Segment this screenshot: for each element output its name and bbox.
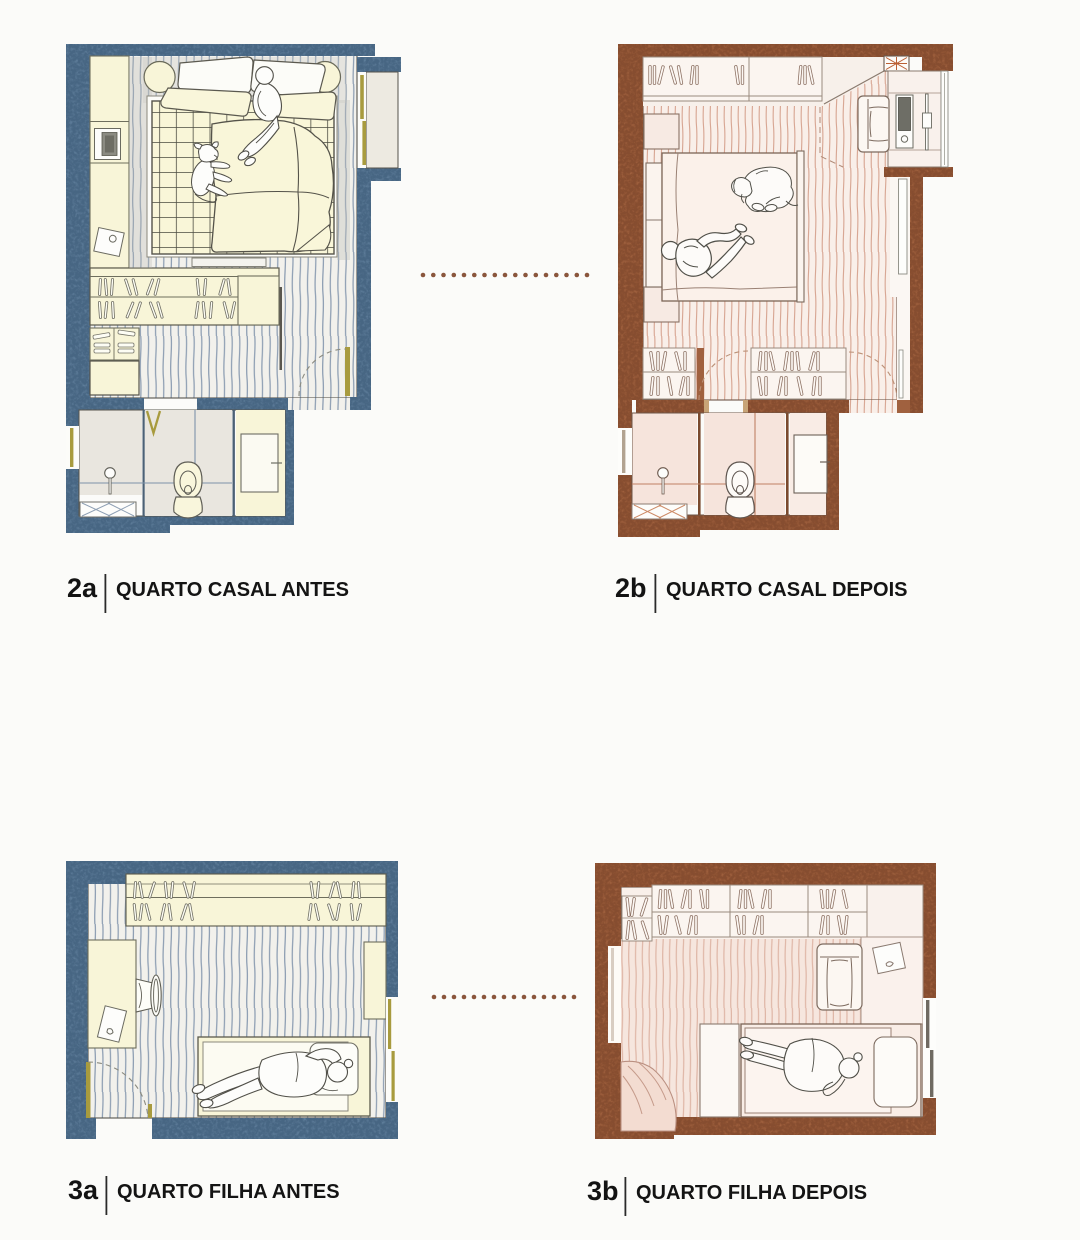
svg-text:3a: 3a	[68, 1175, 99, 1205]
svg-text:QUARTO FILHA ANTES: QUARTO FILHA ANTES	[117, 1181, 340, 1203]
svg-text:QUARTO CASAL ANTES: QUARTO CASAL ANTES	[116, 579, 349, 601]
svg-text:2a: 2a	[67, 573, 98, 603]
svg-text:QUARTO CASAL DEPOIS: QUARTO CASAL DEPOIS	[666, 579, 908, 601]
svg-text:3b: 3b	[587, 1176, 619, 1206]
svg-text:2b: 2b	[615, 573, 647, 603]
svg-text:QUARTO FILHA DEPOIS: QUARTO FILHA DEPOIS	[636, 1182, 867, 1204]
